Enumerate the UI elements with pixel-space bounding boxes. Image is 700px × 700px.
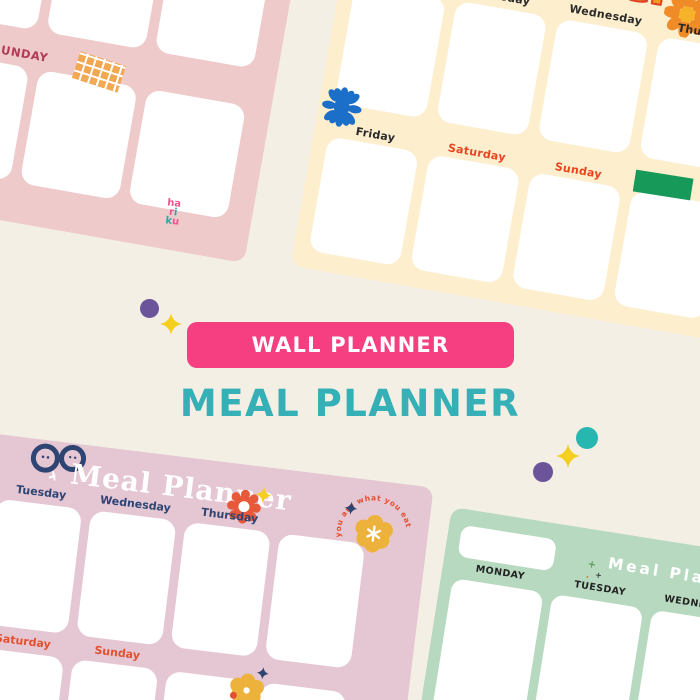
sparkle-icon — [160, 313, 182, 335]
sparkle-icon — [344, 501, 358, 515]
day-box — [639, 36, 700, 172]
sparkle-icon — [556, 444, 580, 468]
day-label: Saturday — [0, 630, 66, 653]
day-box — [76, 510, 177, 646]
plus-sparkle-icon: + — [594, 570, 602, 580]
day-box — [154, 0, 286, 69]
brand-logo: ha ri ku — [155, 198, 189, 243]
sparkle-icon — [255, 486, 273, 504]
blue-flower-icon — [319, 84, 365, 130]
day-box — [20, 70, 138, 201]
planner-sheet-mint: + + · Meal Planner MONDAY TUESDAY WEDNES… — [411, 507, 700, 700]
wall-planner-badge: WALL PLANNER — [187, 322, 514, 368]
day-box — [410, 154, 521, 284]
day-box — [436, 0, 548, 136]
badge-label: WALL PLANNER — [252, 333, 450, 357]
day-box — [511, 172, 622, 302]
yellow-flower-icon — [351, 511, 396, 556]
day-box — [537, 18, 649, 154]
purple-dot-icon — [140, 299, 159, 318]
day-box — [423, 578, 544, 700]
planner-sheet-mauve: Meal Planner Tuesday Wednesday Thursday — [0, 417, 434, 700]
purple-dot-icon — [533, 462, 553, 482]
day-box — [170, 522, 271, 658]
planner-sheet-pink: SUNDAY ha ri ku — [0, 0, 321, 263]
day-box — [0, 647, 64, 700]
day-box — [0, 499, 82, 635]
planner-sheet-cream: Meal Planner Tuesday Wednesday Thursday … — [290, 0, 700, 340]
partial-flower-icon — [0, 434, 1, 456]
sparkle-icon — [256, 667, 269, 680]
day-box — [613, 190, 700, 320]
poster-canvas: SUNDAY ha ri ku Meal Planner Tuesday — [0, 0, 700, 700]
brand-logo-line: ku — [157, 215, 188, 227]
day-label-sunday: SUNDAY — [0, 41, 49, 65]
day-box — [308, 136, 419, 266]
day-box — [58, 659, 159, 700]
page-title: MEAL PLANNER — [140, 382, 560, 425]
